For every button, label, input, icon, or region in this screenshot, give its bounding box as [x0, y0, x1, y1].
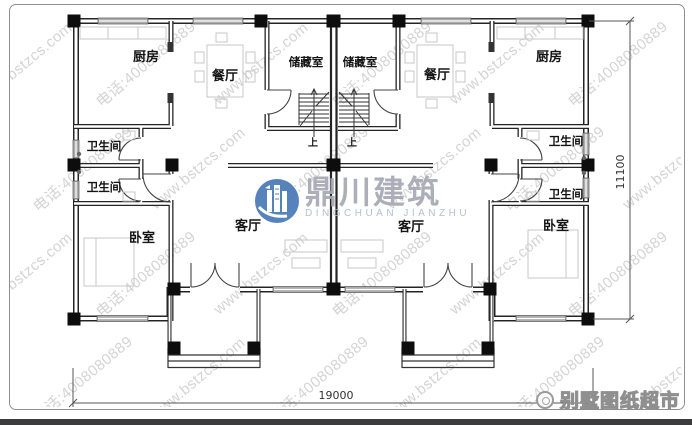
bottom-bar	[0, 419, 692, 425]
dimension-height-label: 11100	[614, 155, 627, 190]
room-label-bedroom-right: 卧室	[543, 218, 569, 233]
company-watermark: 鼎川建筑 DINGCHUAN JIANZHU	[253, 177, 470, 225]
room-label-bath-right-bottom: 卫生间	[549, 187, 584, 201]
porch-walls	[170, 289, 492, 348]
entry-steps	[168, 348, 494, 368]
room-label-kitchen-right: 厨房	[536, 49, 562, 64]
stamp-spiral-icon	[536, 391, 554, 409]
room-label-kitchen-left: 厨房	[133, 49, 159, 64]
room-label-storage-left: 储藏室	[289, 55, 324, 69]
room-label-dining-right: 餐厅	[423, 67, 450, 82]
corner-badge-label: 别墅图纸超市	[560, 386, 680, 413]
stair-up-label-right: 上	[347, 136, 357, 149]
dimension-width-label: 19000	[319, 389, 354, 402]
company-name-cn: 鼎川建筑	[305, 177, 470, 207]
building-circle-icon	[253, 177, 301, 225]
room-label-dining-left: 餐厅	[211, 68, 238, 83]
company-name-en: DINGCHUAN JIANZHU	[305, 208, 470, 219]
stair-up-label-left: 上	[308, 136, 318, 149]
room-label-bath-left-bottom: 卫生间	[87, 180, 122, 194]
room-label-bath-left-top: 卫生间	[87, 139, 122, 153]
corner-badge: 别墅图纸超市	[536, 386, 680, 413]
room-label-bedroom-left: 卧室	[129, 230, 155, 245]
room-label-bath-right-top: 卫生间	[549, 134, 584, 148]
party-wall	[331, 21, 337, 287]
room-label-storage-right: 储藏室	[343, 55, 378, 69]
floor-plan-page: www.bstzcs.com电话:4008080889www.bstzcs.co…	[0, 0, 692, 425]
